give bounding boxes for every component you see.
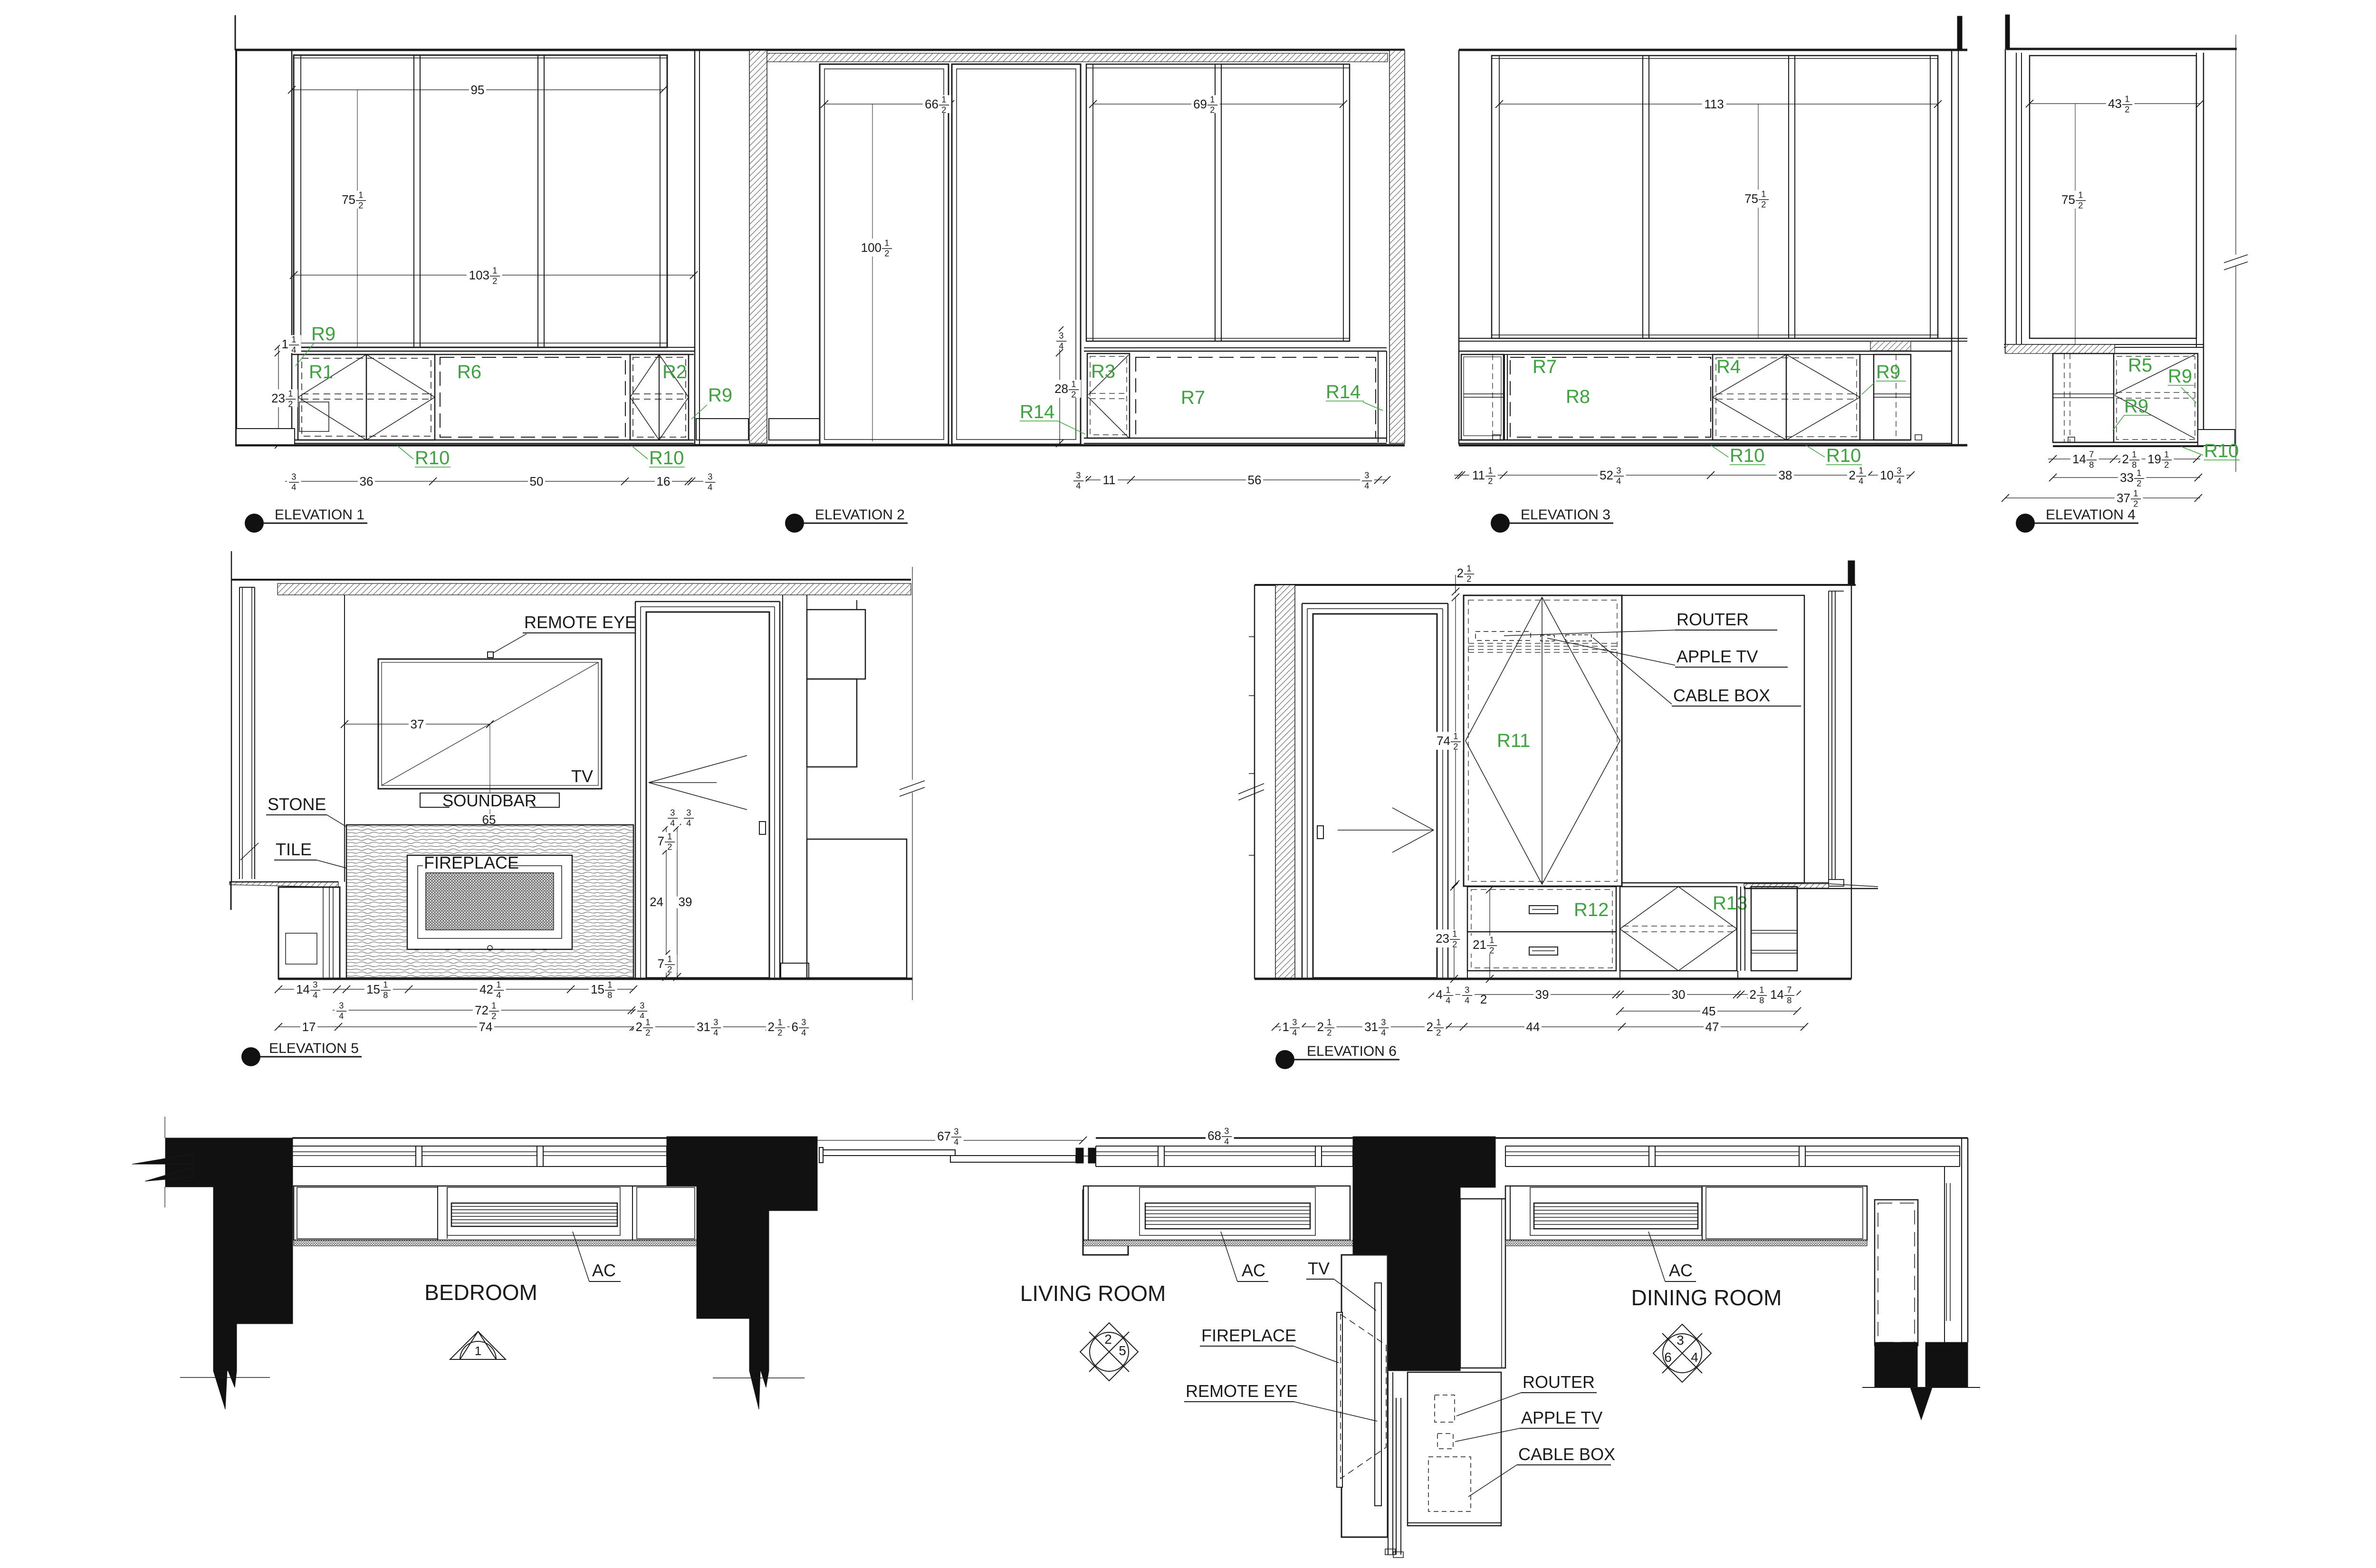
svg-text:6: 6 [1664, 1350, 1672, 1365]
svg-text:2: 2 [1071, 390, 1076, 400]
svg-text:1: 1 [1761, 190, 1766, 199]
svg-text:4: 4 [291, 345, 296, 355]
svg-text:AC: AC [1669, 1261, 1693, 1280]
svg-text:3: 3 [954, 1127, 958, 1137]
svg-text:2: 2 [2122, 452, 2129, 466]
svg-text:37: 37 [2117, 491, 2130, 505]
svg-text:7: 7 [658, 956, 664, 971]
svg-text:1: 1 [291, 335, 296, 344]
svg-text:68: 68 [1207, 1128, 1221, 1143]
svg-text:REMOTE EYE: REMOTE EYE [1186, 1381, 1298, 1401]
svg-text:8: 8 [607, 991, 612, 1000]
svg-text:2: 2 [492, 277, 497, 286]
svg-text:R10: R10 [1826, 445, 1861, 466]
svg-text:R3: R3 [1091, 361, 1115, 382]
svg-text:APPLE TV: APPLE TV [1677, 647, 1758, 666]
svg-text:2: 2 [667, 965, 672, 975]
svg-text:1: 1 [358, 191, 363, 200]
svg-text:1: 1 [1859, 466, 1863, 476]
svg-text:3: 3 [670, 808, 675, 818]
svg-text:37: 37 [411, 717, 424, 731]
svg-text:4: 4 [954, 1138, 958, 1147]
svg-text:1: 1 [475, 1344, 481, 1358]
svg-text:7: 7 [658, 834, 664, 848]
svg-text:R14: R14 [1020, 402, 1054, 422]
svg-text:AC: AC [592, 1261, 616, 1280]
svg-text:3: 3 [1465, 985, 1469, 995]
svg-text:2: 2 [2125, 105, 2129, 115]
svg-text:STONE: STONE [268, 794, 326, 814]
svg-text:2: 2 [1452, 940, 1457, 949]
svg-text:ELEVATION 5: ELEVATION 5 [269, 1041, 359, 1056]
svg-text:1: 1 [1283, 1020, 1289, 1034]
svg-text:17: 17 [302, 1020, 316, 1034]
svg-text:4: 4 [1446, 996, 1450, 1005]
svg-text:1: 1 [383, 980, 388, 990]
svg-text:1: 1 [1466, 564, 1471, 574]
svg-text:52: 52 [1600, 468, 1613, 482]
svg-text:1: 1 [496, 980, 501, 990]
svg-text:23: 23 [271, 391, 285, 405]
svg-text:2: 2 [1104, 1332, 1112, 1347]
svg-text:4: 4 [1436, 987, 1443, 1002]
svg-text:95: 95 [471, 83, 485, 97]
svg-text:4: 4 [1292, 1028, 1297, 1038]
svg-text:6: 6 [792, 1020, 798, 1034]
svg-text:CABLE BOX: CABLE BOX [1673, 686, 1770, 705]
svg-text:R9: R9 [311, 324, 335, 344]
svg-text:2: 2 [768, 1020, 775, 1034]
svg-text:2: 2 [1457, 566, 1464, 580]
svg-text:67: 67 [937, 1129, 951, 1143]
svg-text:R9: R9 [708, 385, 732, 406]
svg-text:2: 2 [288, 400, 293, 409]
svg-text:2: 2 [358, 201, 363, 210]
svg-text:113: 113 [1704, 97, 1724, 111]
svg-text:2: 2 [2164, 460, 2169, 470]
svg-text:1: 1 [1453, 732, 1458, 741]
svg-text:ROUTER: ROUTER [1523, 1372, 1595, 1392]
svg-text:2: 2 [1427, 1020, 1433, 1034]
svg-text:BEDROOM: BEDROOM [424, 1280, 537, 1305]
svg-text:3: 3 [686, 808, 691, 818]
svg-text:FIREPLACE: FIREPLACE [424, 853, 519, 872]
svg-text:ROUTER: ROUTER [1677, 610, 1749, 629]
svg-text:1: 1 [2133, 489, 2138, 498]
svg-text:1: 1 [1436, 1018, 1441, 1027]
svg-text:2: 2 [1849, 468, 1856, 482]
svg-text:36: 36 [360, 474, 374, 488]
svg-text:2: 2 [884, 249, 889, 258]
svg-text:R10: R10 [2204, 440, 2239, 461]
svg-text:4: 4 [1364, 481, 1369, 491]
svg-text:39: 39 [1535, 987, 1549, 1002]
svg-text:21: 21 [1473, 937, 1486, 952]
svg-text:R7: R7 [1181, 387, 1205, 408]
svg-text:R9: R9 [2168, 366, 2192, 387]
svg-text:5: 5 [1119, 1343, 1126, 1358]
svg-text:1: 1 [1446, 985, 1450, 995]
svg-text:38: 38 [1779, 468, 1792, 482]
svg-text:R9: R9 [2124, 396, 2148, 417]
svg-text:APPLE TV: APPLE TV [1521, 1408, 1602, 1427]
svg-text:3: 3 [291, 472, 296, 482]
svg-text:4: 4 [1616, 477, 1621, 486]
svg-text:8: 8 [2132, 460, 2136, 470]
svg-text:3: 3 [1381, 1018, 1386, 1027]
svg-text:1: 1 [491, 1001, 496, 1011]
svg-text:2: 2 [2078, 201, 2083, 210]
svg-text:ELEVATION 3: ELEVATION 3 [1521, 507, 1610, 523]
svg-text:4: 4 [686, 819, 691, 828]
svg-text:56: 56 [1248, 473, 1262, 487]
svg-text:66: 66 [925, 97, 939, 111]
svg-text:45: 45 [1702, 1004, 1716, 1018]
svg-text:1: 1 [2125, 95, 2129, 104]
svg-text:4: 4 [496, 991, 501, 1000]
svg-text:7: 7 [2089, 450, 2094, 459]
svg-text:1: 1 [667, 832, 672, 841]
svg-text:2: 2 [941, 105, 946, 115]
svg-text:TV: TV [571, 766, 593, 786]
svg-text:1: 1 [288, 389, 293, 399]
svg-text:4: 4 [1859, 477, 1863, 486]
svg-text:2: 2 [1210, 105, 1215, 115]
svg-text:100: 100 [861, 240, 881, 255]
svg-text:4: 4 [708, 483, 712, 492]
svg-text:3: 3 [1677, 1333, 1684, 1348]
svg-text:30: 30 [1672, 987, 1686, 1002]
svg-text:2: 2 [667, 842, 672, 852]
svg-text:33: 33 [2120, 470, 2134, 485]
svg-text:14: 14 [1770, 987, 1784, 1002]
svg-text:3: 3 [1059, 331, 1063, 341]
svg-text:16: 16 [657, 474, 671, 488]
svg-text:CABLE BOX: CABLE BOX [1518, 1444, 1615, 1464]
svg-text:2: 2 [1750, 987, 1756, 1002]
svg-text:AC: AC [1242, 1261, 1265, 1280]
svg-text:75: 75 [1744, 191, 1758, 206]
svg-text:8: 8 [383, 991, 388, 1000]
svg-text:3: 3 [313, 980, 317, 990]
svg-text:R11: R11 [1497, 730, 1530, 751]
svg-text:28: 28 [1054, 382, 1068, 396]
svg-text:ELEVATION 2: ELEVATION 2 [815, 507, 905, 523]
svg-text:1: 1 [941, 95, 946, 105]
svg-text:1: 1 [1210, 95, 1215, 105]
svg-text:7: 7 [1787, 985, 1792, 995]
svg-text:75: 75 [2061, 192, 2075, 207]
svg-text:14: 14 [296, 982, 310, 996]
svg-text:3: 3 [1224, 1127, 1229, 1136]
svg-text:2: 2 [2136, 479, 2141, 488]
svg-text:4: 4 [1381, 1028, 1386, 1038]
svg-text:REMOTE EYE: REMOTE EYE [524, 612, 636, 632]
svg-text:4: 4 [670, 819, 675, 828]
svg-text:31: 31 [1364, 1020, 1378, 1034]
svg-text:8: 8 [1787, 996, 1792, 1005]
svg-text:R12: R12 [1574, 899, 1609, 920]
svg-text:69: 69 [1193, 97, 1207, 111]
svg-text:R2: R2 [662, 362, 687, 382]
svg-text:3: 3 [1364, 471, 1369, 480]
svg-text:4: 4 [313, 991, 317, 1000]
svg-text:R4: R4 [1716, 356, 1741, 377]
svg-text:3: 3 [1292, 1018, 1297, 1027]
svg-text:R10: R10 [1730, 445, 1764, 466]
svg-text:23: 23 [1436, 931, 1449, 946]
svg-text:R14: R14 [1326, 382, 1360, 402]
svg-text:43: 43 [2108, 96, 2122, 111]
svg-text:3: 3 [713, 1018, 718, 1027]
svg-text:1: 1 [2164, 450, 2169, 459]
svg-text:2: 2 [636, 1020, 642, 1034]
svg-text:3: 3 [339, 1001, 344, 1011]
svg-text:1: 1 [2132, 450, 2136, 459]
svg-text:R10: R10 [415, 448, 450, 468]
svg-text:3: 3 [1076, 471, 1081, 480]
svg-text:1: 1 [1071, 380, 1076, 389]
svg-text:19: 19 [2147, 452, 2161, 466]
svg-text:2: 2 [1327, 1028, 1332, 1038]
svg-text:1: 1 [282, 337, 288, 351]
svg-text:R9: R9 [1876, 362, 1900, 382]
svg-text:2: 2 [1466, 574, 1471, 584]
svg-text:50: 50 [530, 474, 544, 488]
svg-text:4: 4 [1897, 477, 1901, 486]
svg-text:3: 3 [708, 472, 712, 482]
svg-text:4: 4 [1076, 481, 1081, 491]
svg-text:ELEVATION 4: ELEVATION 4 [2046, 507, 2136, 523]
svg-text:R6: R6 [457, 362, 481, 382]
svg-text:4: 4 [291, 483, 296, 492]
svg-text:1: 1 [884, 239, 889, 248]
svg-text:75: 75 [342, 192, 355, 207]
svg-text:8: 8 [2089, 460, 2094, 470]
svg-text:47: 47 [1705, 1020, 1719, 1034]
svg-text:R10: R10 [649, 448, 684, 468]
svg-text:44: 44 [1526, 1020, 1540, 1034]
svg-text:3: 3 [801, 1018, 806, 1027]
svg-text:11: 11 [1472, 468, 1485, 482]
svg-text:1: 1 [1488, 466, 1493, 476]
svg-text:1: 1 [1759, 985, 1764, 995]
svg-text:15: 15 [591, 982, 604, 996]
svg-text:1: 1 [2078, 191, 2083, 200]
svg-text:15: 15 [366, 982, 380, 996]
svg-text:11: 11 [1103, 473, 1116, 487]
svg-text:TV: TV [1308, 1259, 1330, 1278]
svg-text:LIVING ROOM: LIVING ROOM [1020, 1281, 1166, 1306]
svg-text:4: 4 [1465, 996, 1469, 1005]
svg-text:1: 1 [1452, 929, 1457, 939]
svg-text:1: 1 [607, 980, 612, 990]
svg-text:2: 2 [1317, 1020, 1324, 1034]
svg-text:2: 2 [1436, 1028, 1441, 1038]
svg-text:2: 2 [1489, 946, 1494, 956]
svg-text:1: 1 [667, 955, 672, 964]
svg-text:R7: R7 [1533, 356, 1557, 377]
svg-text:42: 42 [479, 982, 493, 996]
svg-text:ELEVATION 1: ELEVATION 1 [275, 507, 364, 523]
svg-text:1: 1 [777, 1018, 782, 1027]
svg-text:1: 1 [1327, 1018, 1332, 1027]
svg-text:3: 3 [640, 1001, 644, 1011]
svg-text:2: 2 [777, 1028, 782, 1038]
svg-text:4: 4 [1059, 342, 1063, 351]
svg-text:14: 14 [2072, 452, 2086, 466]
svg-text:FIREPLACE: FIREPLACE [1201, 1326, 1296, 1345]
svg-text:24: 24 [650, 895, 663, 909]
svg-text:4: 4 [801, 1028, 806, 1038]
svg-text:103: 103 [469, 268, 489, 282]
svg-text:2: 2 [1453, 742, 1458, 752]
svg-text:3: 3 [1616, 466, 1621, 476]
svg-text:DINING ROOM: DINING ROOM [1631, 1285, 1782, 1310]
svg-text:8: 8 [1759, 996, 1764, 1005]
svg-text:TILE: TILE [276, 840, 312, 859]
svg-text:1: 1 [492, 266, 497, 276]
svg-text:2: 2 [1488, 477, 1493, 486]
svg-text:2: 2 [1761, 200, 1766, 210]
svg-text:R8: R8 [1566, 386, 1590, 407]
svg-text:1: 1 [2136, 468, 2141, 478]
svg-text:31: 31 [697, 1020, 710, 1034]
svg-text:1: 1 [645, 1018, 650, 1027]
svg-text:72: 72 [475, 1003, 489, 1017]
svg-text:4: 4 [1224, 1137, 1229, 1147]
svg-text:39: 39 [679, 895, 692, 909]
svg-text:4: 4 [339, 1012, 344, 1021]
svg-text:3: 3 [1897, 466, 1901, 476]
svg-text:SOUNDBAR: SOUNDBAR [442, 792, 537, 810]
svg-text:1: 1 [1489, 936, 1494, 945]
svg-text:R5: R5 [2128, 355, 2152, 376]
svg-text:4: 4 [713, 1028, 718, 1038]
svg-text:10: 10 [1880, 468, 1894, 482]
svg-text:74: 74 [479, 1020, 493, 1034]
svg-text:R1: R1 [309, 362, 333, 382]
svg-text:74: 74 [1437, 734, 1450, 748]
svg-text:4: 4 [1691, 1350, 1698, 1365]
svg-text:2: 2 [645, 1028, 650, 1038]
svg-text:ELEVATION 6: ELEVATION 6 [1307, 1043, 1397, 1059]
svg-text:R13: R13 [1713, 893, 1747, 914]
